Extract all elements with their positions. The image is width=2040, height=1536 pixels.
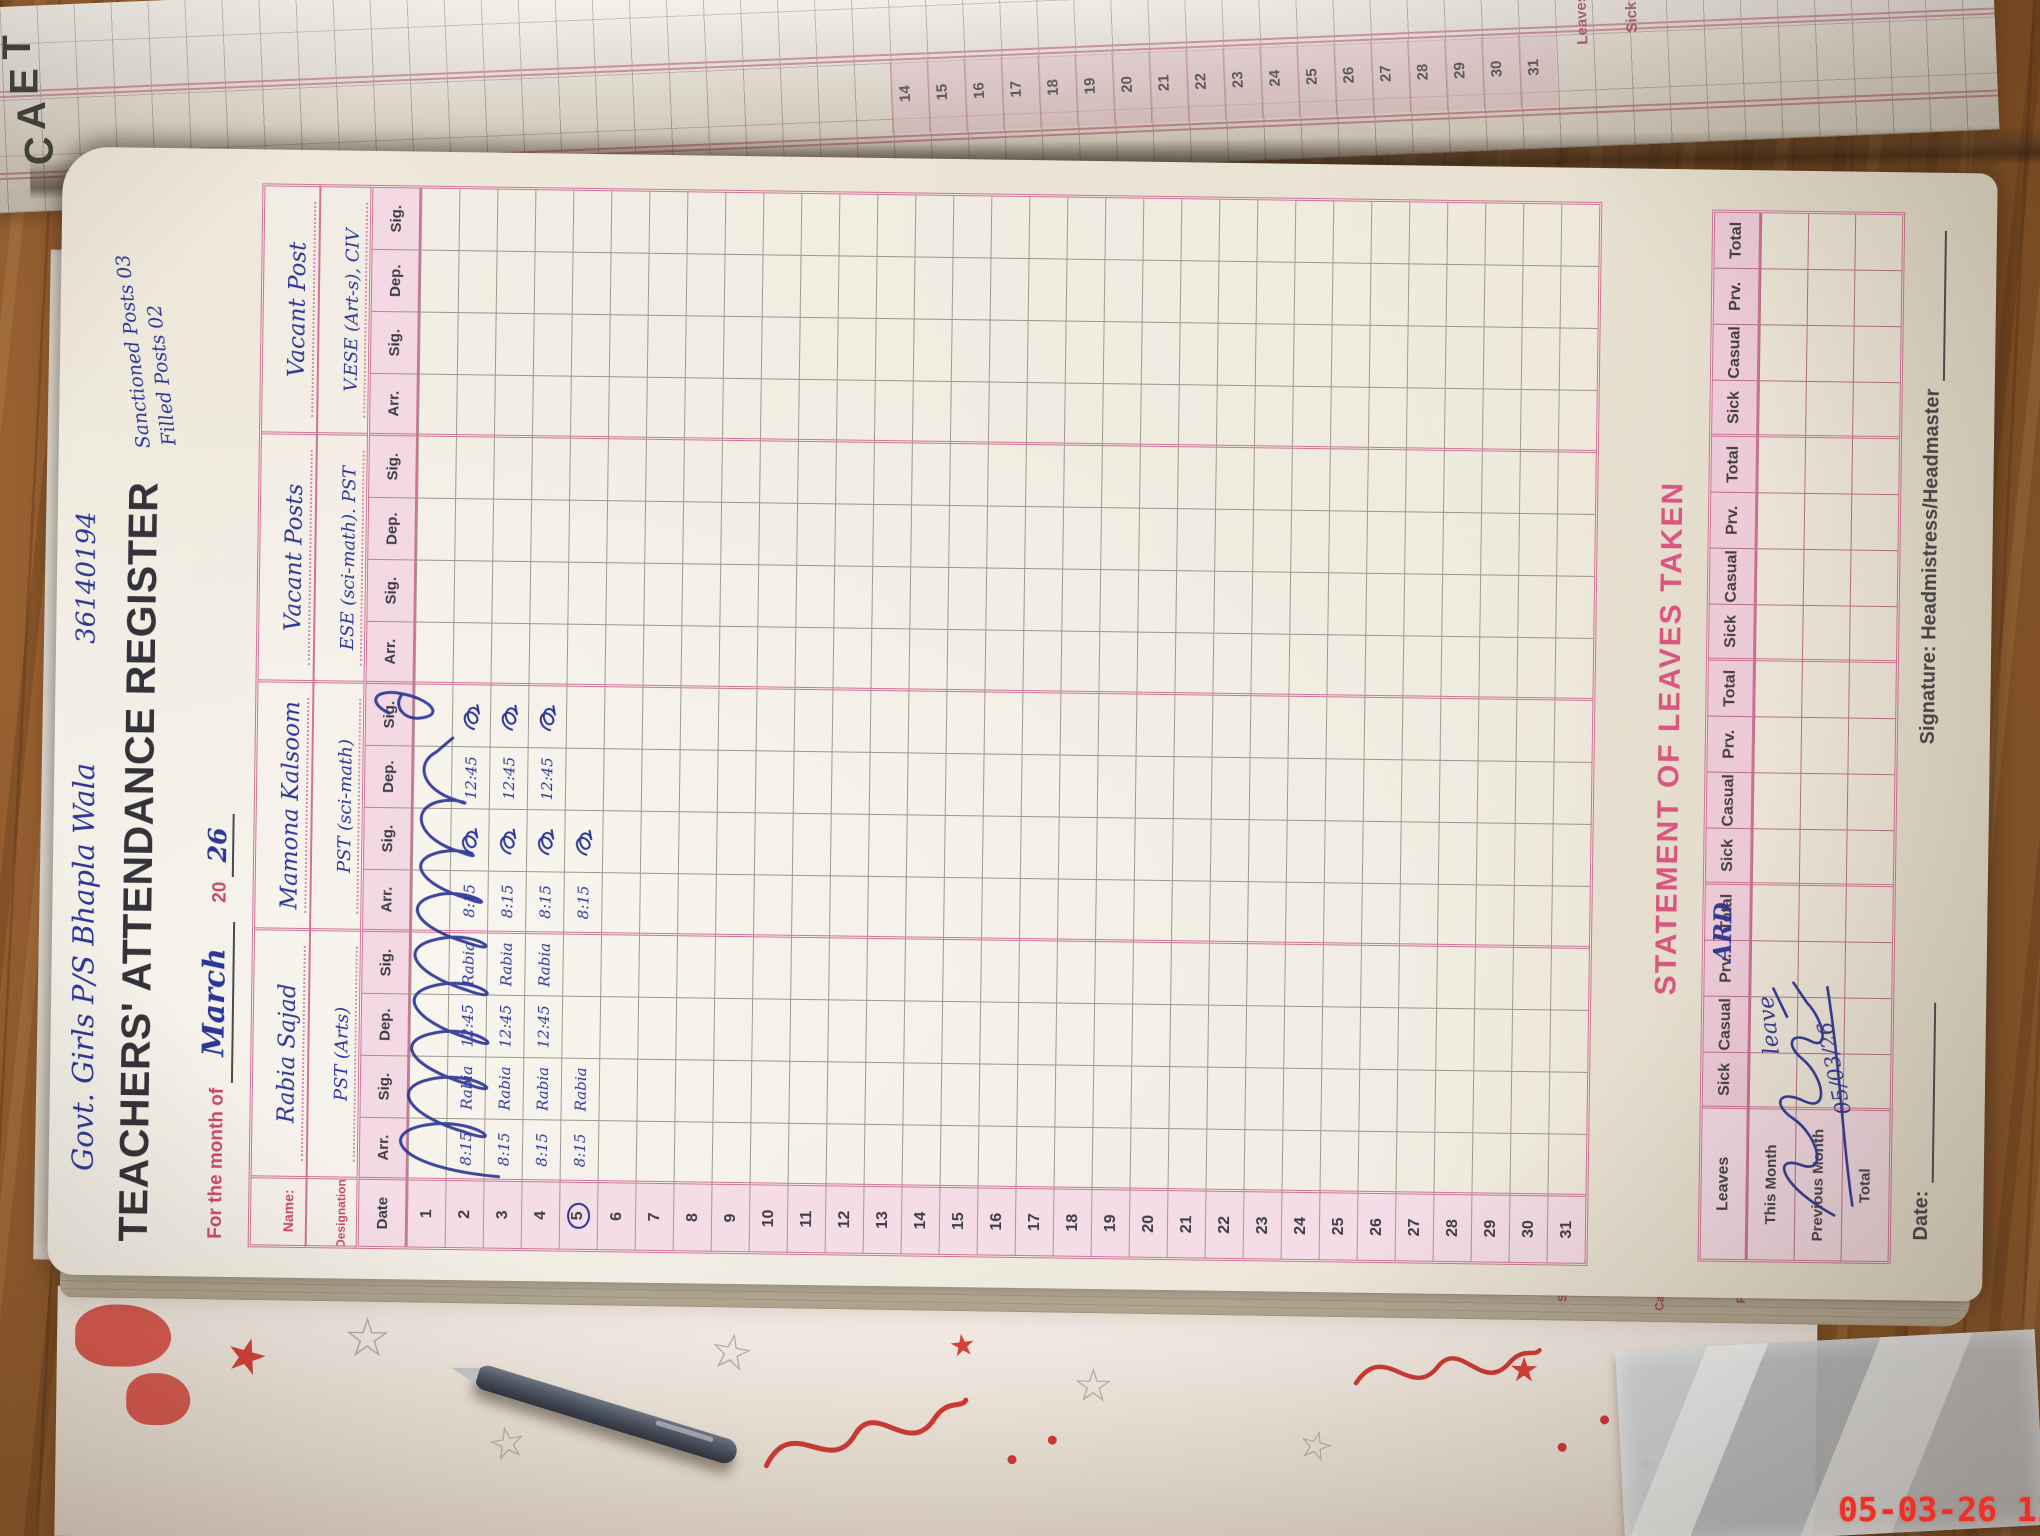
attendance-cell [1019,941,1057,1004]
attendance-cell [1438,885,1476,948]
star-icon: ☆ [704,1320,758,1385]
attendance-cell [753,937,791,1000]
date-number: 26 [1367,1218,1385,1236]
attendance-cell [941,1064,979,1127]
attendance-cell [1561,204,1599,267]
attendance-cell [1292,449,1330,512]
attendance-cell [451,809,489,872]
attendance-cell [1282,1131,1320,1194]
attendance-cell [1022,755,1060,818]
attendance-cell [792,876,830,939]
month-label: For the month of [205,1088,228,1239]
attendance-cell [639,936,677,999]
attendance-cell [874,443,912,506]
attendance-cell [1251,696,1289,759]
attendance-cell: 8:15 [447,1119,485,1182]
attendance-cell [1135,819,1173,882]
attendance-cell [1403,636,1441,699]
attendance-cell [1255,386,1293,449]
facing-date-number: 16 [970,82,988,99]
attendance-cell [790,1000,828,1063]
attendance-cell [1169,1067,1207,1130]
camera-timestamp: 05-03-26 11:00 [1838,1490,2040,1529]
attendance-cell [1290,573,1328,636]
facing-date-number: 27 [1377,65,1395,82]
attendance-cell [415,685,453,748]
leaves-cell [1855,271,1902,328]
attendance-cell [415,623,453,686]
teacher-designation: PST (Arts) [330,946,358,1162]
attendance-cell [649,254,687,317]
date-number: 14 [911,1212,929,1230]
attendance-cell [985,630,1023,693]
signature-scribble-icon [572,824,596,858]
attendance-cell [985,692,1023,755]
attendance-cell [675,1122,713,1185]
attendance-entry: 12:45 [496,1005,515,1048]
attendance-cell [1098,756,1136,819]
attendance-entry: 12:45 [458,1004,477,1047]
attendance-cell [567,625,605,688]
attendance-cell [1181,199,1219,262]
attendance-cell [1513,948,1551,1011]
attendance-cell [682,564,720,627]
attendance-cell [1215,510,1253,573]
date-number: 2 [456,1210,474,1219]
attendance-cell [795,628,833,691]
sub-header-cell: Sig. [371,312,418,375]
attendance-cell [1320,1131,1358,1194]
attendance-entry: Rabia [533,1067,552,1111]
attendance-cell [761,379,799,442]
facing-date-cell: 19 [1074,53,1114,126]
facing-date-number: 17 [1007,80,1025,97]
attendance-cell [720,565,758,628]
sub-header-label: Dep. [376,1008,393,1041]
footer-date-label: Date: [1910,1190,1934,1240]
attendance-cell [713,1061,751,1124]
attendance-cell [650,192,688,255]
attendance-cell [948,568,986,631]
teacher-name: Mamona Kalsoom [276,697,309,913]
attendance-cell [1061,694,1099,757]
attendance-cell [716,875,754,938]
attendance-cell [904,1001,942,1064]
attendance-cell [675,1060,713,1123]
attendance-cell [873,505,911,568]
attendance-cell [1133,943,1171,1006]
leaves-cell [1846,887,1893,944]
attendance-cell [757,627,795,690]
attendance-cell [1330,449,1368,512]
leaves-header-cell: Sick [1706,829,1751,886]
date-number: 7 [646,1212,664,1221]
attendance-cell [1408,326,1446,389]
attendance-cell [1520,452,1558,515]
attendance-cell [688,192,726,255]
leaves-header-label: Total [1718,894,1737,931]
attendance-cell [1219,200,1257,263]
facing-date-strip: 141516171819202122232425262728293031 [0,0,1991,9]
attendance-cell [418,437,456,500]
facing-date-cell: 31 [1518,34,1558,107]
attendance-cell [1333,201,1371,264]
leaves-corner-cell: Leaves [1701,1109,1747,1260]
attendance-cell [1402,760,1440,823]
attendance-cell [991,197,1029,260]
attendance-cell: 8:15 [485,1120,523,1183]
attendance-cell [646,440,684,503]
attendance-cell [647,378,685,441]
leaves-cell [1807,326,1854,383]
star-icon: ☆ [1292,1419,1338,1473]
date-number: 19 [1101,1214,1119,1232]
attendance-cell [1551,948,1589,1011]
attendance-cell [952,320,990,383]
attendance-cell [567,687,605,750]
attendance-cell [1029,259,1067,322]
attendance-cell [497,252,535,315]
leaves-row-label-cell: This Month [1748,1109,1796,1260]
signature-scribble-icon [496,823,520,857]
leaves-header-label: Casual [1723,550,1742,603]
attendance-cell [1439,823,1477,886]
attendance-cell [1134,881,1172,944]
attendance-cell [979,1126,1017,1189]
attendance-cell [601,935,639,998]
attendance-cell [608,439,646,502]
attendance-cell [1401,822,1439,885]
attendance-cell [1286,883,1324,946]
attendance-cell [1363,822,1401,885]
attendance-entry: 8:15 [494,1132,512,1166]
attendance-cell [1447,203,1485,266]
attendance-entry: Rabia [459,942,478,986]
attendance-cell [763,255,801,318]
facing-date-cell: 27 [1370,40,1410,113]
date-cell: 25 [1320,1193,1358,1260]
attendance-cell [1132,1005,1170,1068]
sub-header-label: Sig. [380,701,397,729]
attendance-cell [1249,820,1287,883]
attendance-cell [1552,886,1590,949]
attendance-cell [796,566,834,629]
footer-date-blank [1914,1002,1937,1182]
leaves-header-cell: Total [1714,213,1759,270]
attendance-cell [1217,386,1255,449]
attendance-cell [944,878,982,941]
attendance-cell [1407,388,1445,451]
attendance-cell [834,566,872,629]
facing-date-number: 22 [1192,73,1210,90]
leaves-corner-label: Leaves [1714,1157,1732,1212]
attendance-cell [1485,203,1523,266]
sub-header-label: Sig. [384,453,401,481]
attendance-cell [726,193,764,256]
leaves-table: LeavesSickCasualPrv.TotalSickCasualPrv.T… [1698,210,1906,1265]
attendance-cell [1283,1069,1321,1132]
leaves-cell [1849,663,1896,720]
date-cell: 5 [560,1183,598,1250]
attendance-cell [1404,574,1442,637]
attendance-cell [1289,697,1327,760]
attendance-cell [681,688,719,751]
attendance-cell [573,253,611,316]
attendance-cell [953,258,991,321]
attendance-cell [409,1056,447,1119]
attendance-cell [1523,204,1561,267]
attendance-cell [986,568,1024,631]
attendance-cell [1207,1068,1245,1131]
attendance-cell [1555,638,1593,701]
attendance-cell [638,998,676,1061]
attendance-cell [980,1002,1018,1065]
attendance-cell [876,319,914,382]
footer-signature-blank [1925,231,1947,381]
attendance-cell [640,874,678,937]
attendance-cell [1140,447,1178,510]
teacher-designation: V.ESE (Art-s), CIV [340,202,368,418]
date-cell: 26 [1358,1194,1396,1261]
attendance-cell [1323,945,1361,1008]
attendance-cell [757,689,795,752]
attendance-cell [1064,446,1102,509]
attendance-cell [764,193,802,256]
attendance-cell [1295,263,1333,326]
cover-letter: T [0,31,35,60]
attendance-cell [684,440,722,503]
designation-label: Designation: [334,1179,355,1246]
date-number: 30 [1519,1220,1537,1238]
attendance-cell [751,1123,789,1186]
attendance-cell [565,811,603,874]
attendance-cell [903,1063,941,1126]
facing-date-number: 18 [1044,79,1062,96]
attendance-cell [1179,385,1217,448]
leaves-cell [1756,605,1803,662]
facing-date-cell: 24 [1259,45,1299,118]
attendance-cell [1029,197,1067,260]
attendance-cell [903,1125,941,1188]
facing-date-number: 30 [1488,60,1506,77]
attendance-table: DateArr.Sig.Dep.Sig.Arr.Sig.Dep.Sig.Arr.… [356,185,1603,1266]
attendance-cell [715,937,753,1000]
attendance-cell [686,316,724,379]
red-blob-decor [126,1373,191,1426]
attendance-cell [453,685,491,748]
attendance-cell: Rabia [447,1057,485,1120]
attendance-cell [1397,1070,1435,1133]
attendance-cell [1099,632,1137,695]
attendance-cell [1289,635,1327,698]
attendance-cell [563,935,601,998]
attendance-cell [1557,514,1595,577]
sub-header-cell: Dep. [372,250,419,313]
attendance-cell [1436,1009,1474,1072]
attendance-cell [1554,762,1592,825]
date-cell: 6 [598,1183,636,1250]
leaves-header-cell: Casual [1710,549,1755,606]
date-header-cell: Date [359,1180,406,1247]
sub-header-label: Arr. [378,887,395,913]
attendance-cell [1143,199,1181,262]
attendance-cell [1257,200,1295,263]
leaves-cell [1754,773,1801,830]
attendance-cell [1143,261,1181,324]
leaves-cell [1847,831,1894,888]
leaves-header-cell: Prv. [1711,493,1756,550]
attendance-cell [1067,198,1105,261]
attendance-cell [496,314,534,377]
attendance-cell: 12:45 [486,996,524,1059]
attendance-cell [416,561,454,624]
attendance-cell [1550,1010,1588,1073]
facing-date-cell: 18 [1037,54,1077,127]
attendance-cell [1174,757,1212,820]
attendance-cell [1295,201,1333,264]
attendance-cell [911,505,949,568]
facing-date-cell: 21 [1148,49,1188,122]
attendance-cell [725,255,763,318]
leaves-header-cell: Prv. [1707,717,1752,774]
leaves-cell [1761,213,1808,270]
attendance-cell [422,189,460,252]
leaves-cell [1755,661,1802,718]
sub-header-cell: Dep. [361,994,408,1057]
leaves-cell [1759,381,1806,438]
attendance-cell [1171,943,1209,1006]
attendance-cell [1405,512,1443,575]
attendance-cell [1131,1067,1169,1130]
date-cell: 4 [522,1182,560,1249]
leaves-cell [1753,829,1800,886]
date-cell: 1 [408,1180,446,1247]
attendance-cell [1023,693,1061,756]
attendance-cell [637,1122,675,1185]
attendance-cell [875,381,913,444]
attendance-cell [1472,1133,1510,1196]
attendance-cell [909,691,947,754]
leaves-header-label: Prv. [1724,506,1742,535]
attendance-cell: Rabia [561,1059,599,1122]
sub-header-label: Sig. [379,825,396,853]
attendance-cell [1210,882,1248,945]
attendance-entry: 12:45 [461,756,480,799]
attendance-cell [604,749,642,812]
attendance-cell [1105,198,1143,261]
date-cell: 27 [1396,1194,1434,1261]
date-number: 13 [873,1211,891,1229]
attendance-cell [536,190,574,253]
leaves-cell [1802,662,1849,719]
sub-header-label: Sig. [386,329,403,357]
leaves-header-cell: Sick [1703,1053,1748,1110]
facing-sick-label: Sick [1623,1,1641,33]
attendance-cell [1476,885,1514,948]
sub-header-cell: Dep. [368,498,415,561]
leaves-header-cell: Sick [1709,605,1754,662]
attendance-cell [529,624,567,687]
attendance-cell [755,813,793,876]
attendance-cell [840,194,878,257]
attendance-cell [494,438,532,501]
attendance-cell [713,1123,751,1186]
date-cell: 12 [826,1186,864,1253]
teacher-designation-cell: V.ESE (Art-s), CIV [318,187,371,436]
attendance-cell [489,810,527,873]
attendance-cell [914,319,952,382]
attendance-entry: Rabia [495,1066,514,1110]
leaves-body: This MonthPrevious MonthTotal [1747,213,1903,1261]
attendance-cell [1066,322,1104,385]
star-icon: ★ [1509,1350,1540,1390]
attendance-cell [988,445,1026,508]
attendance-cell [606,563,644,626]
attendance-cell [868,877,906,940]
attendance-cell [751,1061,789,1124]
attendance-cell [983,816,1021,879]
attendance-cell [685,378,723,441]
attendance-cell [611,253,649,316]
leaves-cell [1850,607,1897,664]
facing-date-cell: 17 [1001,56,1041,129]
leaves-row-label: This Month [1763,1144,1781,1224]
attendance-cell [562,997,600,1060]
leaves-cell [1852,439,1899,496]
attendance-cell [982,878,1020,941]
attendance-cell [1548,1134,1586,1197]
date-number: 6 [608,1212,626,1221]
facing-date-number: 26 [1340,66,1358,83]
sub-header-label: Arr. [374,1135,391,1161]
attendance-cell [1288,759,1326,822]
attendance-cell [1329,511,1367,574]
attendance-cell [1327,635,1365,698]
attendance-cell: Rabia [449,933,487,996]
sub-header-label: Arr. [385,391,402,417]
facing-date-cell: 15 [927,59,967,132]
sub-header-cell: Sig. [364,808,411,871]
date-number: 11 [797,1210,815,1227]
attendance-cell: 12:45 [524,996,562,1059]
attendance-cell [492,562,530,625]
attendance-cell [1209,944,1247,1007]
star-icon: ☆ [1072,1358,1114,1413]
attendance-cell [871,691,909,754]
attendance-cell [789,1062,827,1125]
attendance-cell [680,750,718,813]
attendance-cell: 12:45 [490,748,528,811]
leaves-cell [1844,1055,1891,1112]
attendance-cell [1173,819,1211,882]
date-cell: 14 [902,1187,940,1254]
leaves-cell [1855,215,1902,272]
attendance-cell [1175,695,1213,758]
facing-date-cell: 28 [1407,39,1447,112]
attendance-cell [1055,1066,1093,1129]
attendance-cell [1093,1128,1131,1191]
leaves-cell [1761,269,1808,326]
leaves-cell [1848,775,1895,832]
designation-label-cell: Designation: [307,1179,358,1246]
attendance-cell [1244,1130,1282,1193]
attendance-entry: 12:45 [537,757,556,800]
attendance-cell [979,1064,1017,1127]
attendance-cell [457,375,495,438]
attendance-cell [719,689,757,752]
attendance-cell [421,251,459,314]
date-number: 9 [722,1213,740,1222]
